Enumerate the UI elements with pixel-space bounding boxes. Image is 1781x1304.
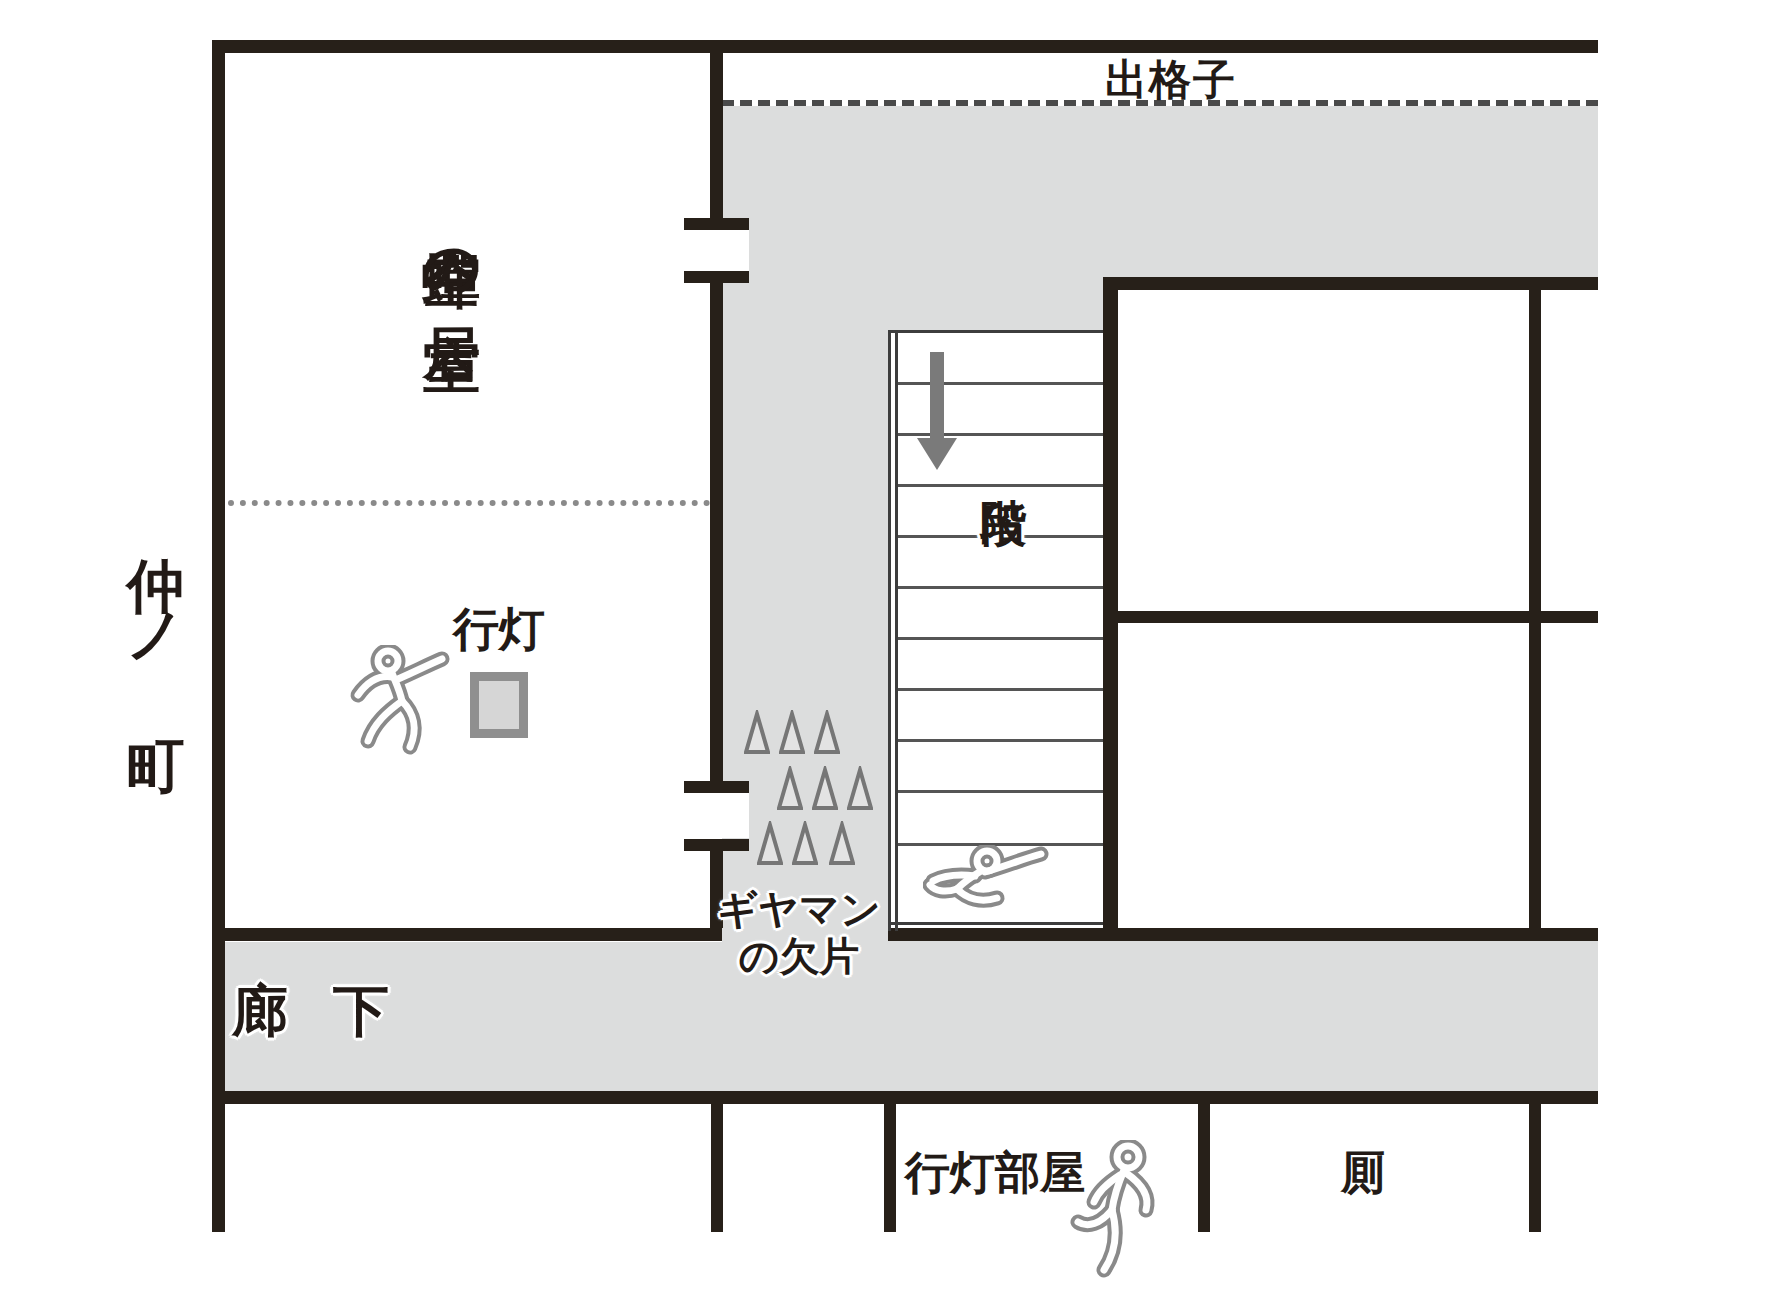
label-street-nakanocho: 仲ノ町 <box>123 512 188 752</box>
stair-step <box>898 739 1103 742</box>
door-opening-upper <box>710 229 749 272</box>
wall-right-room-top <box>1103 277 1598 290</box>
wall-bottom-room-divider <box>884 1104 896 1232</box>
stair-border-bottom <box>888 922 1103 925</box>
body-outline-icon <box>344 645 456 765</box>
door-jamb-tick <box>684 839 749 851</box>
lantern-square <box>470 672 528 738</box>
door-opening-lower <box>710 792 749 838</box>
glass-shard-icon <box>847 766 873 812</box>
glass-shard-icon <box>814 710 840 756</box>
label-glass-line1: ギヤマン <box>717 886 881 933</box>
stair-step <box>898 637 1103 640</box>
label-lantern-room: 行灯部屋 <box>905 1148 1085 1198</box>
label-stairs: 階段 <box>978 462 1030 468</box>
glass-shard-icon <box>792 821 818 867</box>
body-outline-icon <box>923 845 1051 915</box>
floor-plan-diagram: 出格子 空蟬の居室 仲ノ町 行灯 階段 ギヤマン の欠片 廊下 行灯部屋 厠 <box>0 0 1781 1304</box>
stair-border-left-outer <box>888 330 891 931</box>
right-room-block <box>1103 277 1598 928</box>
room-divider-dotted-line <box>228 500 710 506</box>
glass-shard-icon <box>812 766 838 812</box>
glass-shard-icon <box>779 710 805 756</box>
wall-right-room-left <box>1103 277 1118 940</box>
label-lantern: 行灯 <box>453 604 545 656</box>
label-corridor: 廊下 <box>232 980 434 1043</box>
wall-utsusemi-right-seg1 <box>710 52 723 218</box>
stair-step <box>898 586 1103 589</box>
down-arrow-icon <box>917 352 957 472</box>
wall-left <box>212 40 225 1232</box>
label-privy: 厠 <box>1341 1147 1387 1199</box>
stair-step <box>898 535 1103 538</box>
stair-border-left-inner <box>895 330 898 931</box>
label-lattice-window: 出格子 <box>1105 56 1237 103</box>
glass-shard-icon <box>777 766 803 812</box>
stair-step <box>898 484 1103 487</box>
glass-shard-icon <box>829 821 855 867</box>
wall-right-room-divider <box>1103 611 1598 623</box>
stair-step <box>898 688 1103 691</box>
label-glass-line2: の欠片 <box>717 933 881 980</box>
wall-bottom-room-divider <box>711 1104 723 1232</box>
wall-right-room-inner-right <box>1529 290 1541 928</box>
door-jamb-tick <box>684 271 749 283</box>
door-jamb-tick <box>684 781 749 793</box>
wall-bottom-room-divider <box>1198 1104 1210 1232</box>
label-utsusemi-room: 空蟬の居室 <box>419 200 484 291</box>
wall-corridor-top-right <box>888 928 1598 941</box>
stair-step <box>898 790 1103 793</box>
wall-top <box>212 40 1598 53</box>
wall-corridor-bottom <box>212 1091 1598 1104</box>
wall-bottom-room-divider <box>1529 1104 1541 1232</box>
stair-border-top <box>888 330 1103 333</box>
wall-utsusemi-right-seg2 <box>710 283 723 781</box>
door-jamb-tick <box>684 218 749 230</box>
glass-shard-icon <box>757 821 783 867</box>
label-glass-fragments: ギヤマン の欠片 <box>717 886 881 980</box>
wall-corridor-top-left <box>212 928 722 941</box>
glass-shard-icon <box>744 710 770 756</box>
